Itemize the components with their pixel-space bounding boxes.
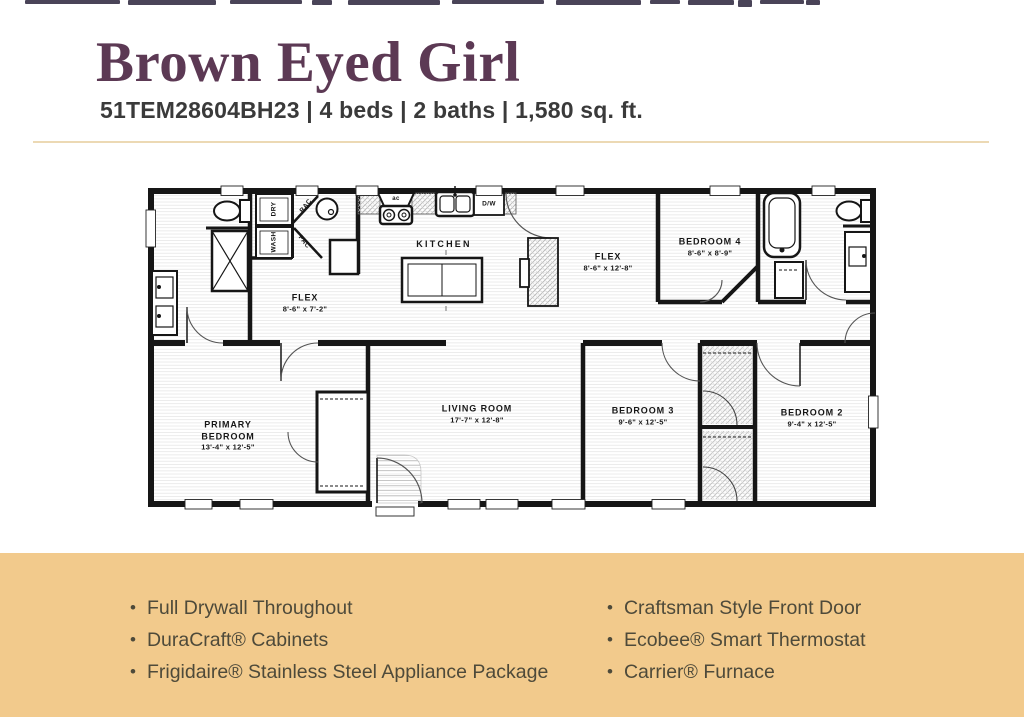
washer-label: WASH xyxy=(271,231,278,252)
linen-closet xyxy=(775,262,803,298)
hall-closets xyxy=(703,346,753,501)
feature-item: Frigidaire® Stainless Steel Appliance Pa… xyxy=(130,661,548,684)
room-label-living-room: LIVING ROOM 17'-7" x 12'-8" xyxy=(442,403,512,424)
feature-item: Ecobee® Smart Thermostat xyxy=(607,629,866,652)
toilet-icon-2 xyxy=(837,202,862,221)
feature-item: DuraCraft® Cabinets xyxy=(130,629,328,652)
feature-item: Craftsman Style Front Door xyxy=(607,597,861,620)
range-vent-label: ac xyxy=(392,196,399,202)
room-label-primary-bedroom: PRIMARY BEDROOM 13'-4" x 12'-5" xyxy=(189,419,267,452)
feature-item: Carrier® Furnace xyxy=(607,661,775,684)
toilet-icon xyxy=(214,202,240,221)
primary-closet xyxy=(317,392,368,492)
porch-step xyxy=(376,507,414,516)
front-door xyxy=(372,455,422,516)
dryer-label: DRY xyxy=(271,202,278,217)
room-label-bedroom2: BEDROOM 2 9'-4" x 12'-5" xyxy=(781,407,844,428)
room-label-flex-large: FLEX 8'-6" x 12'-8" xyxy=(583,251,632,272)
feature-band: Full Drywall Throughout DuraCraft® Cabin… xyxy=(0,553,1024,717)
dishwasher-label: D/W xyxy=(482,201,496,208)
kitchen-island xyxy=(402,258,482,302)
feature-item: Full Drywall Throughout xyxy=(130,597,353,620)
room-label-bedroom4: BEDROOM 4 8'-6" x 8'-9" xyxy=(679,236,742,257)
room-label-bedroom3: BEDROOM 3 9'-6" x 12'-5" xyxy=(612,405,675,426)
room-label-flex-small: FLEX 8'-6" x 7'-2" xyxy=(283,292,328,313)
furnace-box xyxy=(330,240,358,274)
room-label-kitchen: KITCHEN xyxy=(416,239,471,251)
marketing-sheet: { "header": { "title": "Brown Eyed Girl"… xyxy=(0,0,1024,717)
water-heater-icon xyxy=(317,199,338,220)
